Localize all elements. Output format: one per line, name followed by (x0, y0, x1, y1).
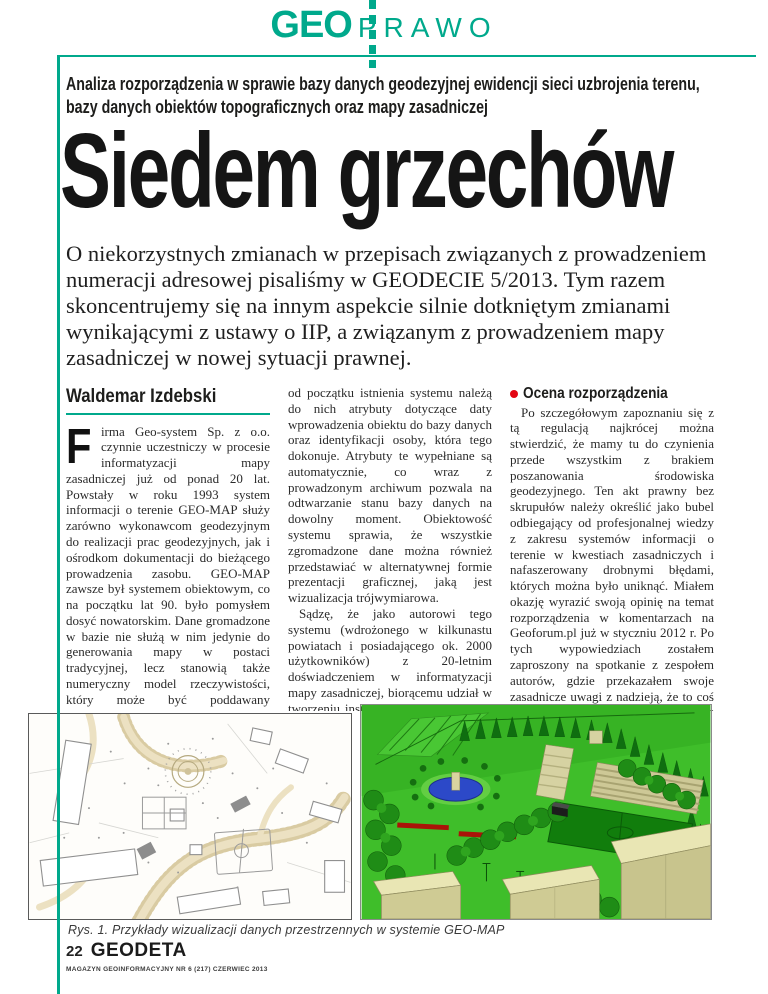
scene-3d-graphic (361, 705, 711, 919)
author-name: Waldemar Izdebski (66, 387, 216, 407)
column-1: Waldemar Izdebski Firma Geo-system Sp. z… (66, 385, 270, 711)
logo-geo-text: GEO (270, 6, 351, 44)
column-2: od początku istnienia systemu należą do … (288, 385, 492, 711)
geodeta-logo: GEODETA (91, 941, 187, 960)
header-rule (57, 55, 756, 57)
column1-paragraph-1: Firma Geo-system Sp. z o.o. czynnie ucze… (66, 424, 270, 712)
column2-paragraph-1: od początku istnienia systemu należą do … (288, 385, 492, 606)
magazine-section-logo: GEO PRAWO (0, 6, 768, 44)
article-lead: O niekorzystnych zmianach w przepisach z… (66, 241, 718, 370)
article-headline: Siedem grzechów (60, 118, 768, 224)
column3-paragraph-1: Po szczegółowym zapoznaniu się z tą regu… (510, 405, 714, 712)
column1-paragraph-1-text: irma Geo-system Sp. z o.o. czynnie uczes… (66, 424, 270, 712)
logo-prawo-text: PRAWO (358, 14, 498, 42)
author-rule (66, 413, 270, 415)
section-heading: Ocena rozporządzenia (510, 386, 714, 402)
column2-paragraph-2-text: Sądzę, że jako autorowi tego systemu (wd… (288, 606, 492, 711)
page-footer: 22 GEODETA (66, 941, 187, 960)
page-number: 22 (66, 943, 83, 960)
dropcap-letter: F (66, 424, 96, 467)
left-margin-rule (57, 55, 60, 994)
column-3: Ocena rozporządzenia Po szczegółowym zap… (510, 385, 714, 711)
figure-3d-scene-visualization (360, 704, 712, 920)
section-heading-text: Ocena rozporządzenia (523, 386, 668, 402)
map-2d-graphic (29, 714, 351, 919)
figure-caption: Rys. 1. Przykłady wizualizacji danych pr… (68, 923, 505, 937)
article-columns: Waldemar Izdebski Firma Geo-system Sp. z… (66, 385, 714, 711)
column2-paragraph-2: Sądzę, że jako autorowi tego systemu (wd… (288, 606, 492, 711)
issue-info: MAGAZYN GEOINFORMACYJNY NR 6 (217) CZERW… (66, 966, 268, 973)
section-bullet-icon (510, 390, 518, 398)
article-headline-text: Siedem grzechów (60, 118, 672, 224)
geodeta-logo-text: GEODETA (91, 940, 187, 961)
magazine-page: GEO PRAWO Analiza rozporządzenia w spraw… (0, 0, 768, 994)
figure-2d-map-visualization (28, 713, 352, 920)
